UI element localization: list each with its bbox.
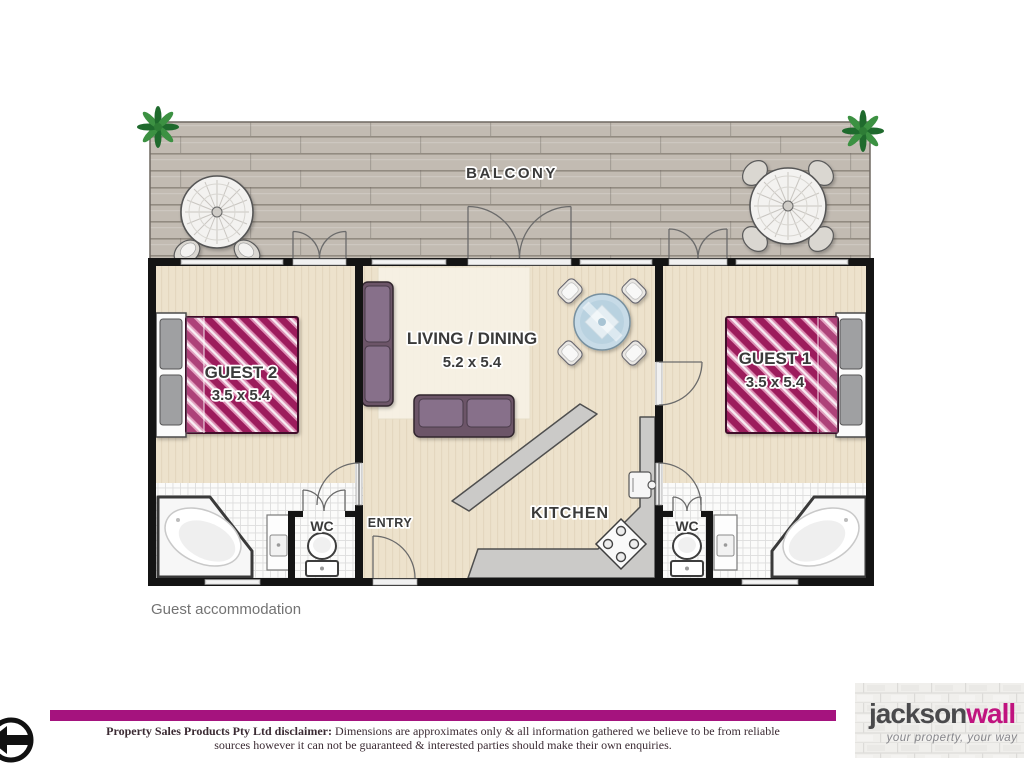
outdoor-table-icon [738,156,839,257]
living-label: LIVING / DINING [407,329,537,348]
wc-right-label: WC [675,518,698,534]
kitchen-label: KITCHEN [531,505,609,522]
floor-plan-image: BALCONY [0,0,1024,768]
plan-caption: Guest accommodation [151,601,301,618]
guest1-dims: 3.5 x 5.4 [746,374,805,391]
guest1-label: GUEST 1 [739,349,812,368]
vanity-icon [267,515,290,570]
disclaimer-bold: Property Sales Products Pty Ltd disclaim… [106,724,332,738]
guest2-dims: 3.5 x 5.4 [212,387,271,404]
vanity-icon [714,515,737,570]
logo-tagline: your property, your way [886,732,1019,744]
entry-label: ENTRY [368,516,413,530]
disclaimer-text: Property Sales Products Pty Ltd disclaim… [50,725,836,752]
sofa-icon [362,282,393,406]
logo-name-accent: wall [965,698,1015,729]
disclaimer-line1: Property Sales Products Pty Ltd disclaim… [50,725,836,739]
balcony-label: BALCONY [466,165,558,182]
plant-icon [137,106,179,148]
logo-wordmark: jacksonwall [868,698,1015,729]
disclaimer-line2: sources however it can not be guaranteed… [50,739,836,753]
toilet-icon [306,533,338,576]
north-arrow-icon [0,713,39,767]
balcony: BALCONY [137,106,884,269]
floor-plan-page: BALCONY [0,0,1024,768]
wc-left-label: WC [310,518,333,534]
footer-accent-bar [50,710,836,721]
toilet-icon [671,533,703,576]
jacksonwall-logo: jacksonwall your property, your way [855,683,1024,758]
living-dims: 5.2 x 5.4 [443,354,502,371]
logo-name-gray: jackson [868,698,966,729]
plant-icon [842,110,884,152]
disclaimer-line1-rest: Dimensions are approximates only & all i… [332,724,780,738]
sofa-icon [414,395,514,437]
guest2-label: GUEST 2 [205,363,278,382]
